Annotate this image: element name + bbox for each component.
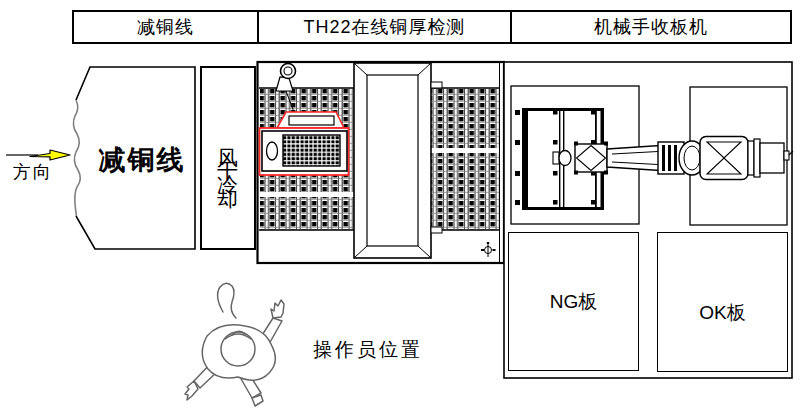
operator-position-label: 操作员位置 (313, 337, 423, 363)
header-th22-detection: TH22在线铜厚检测 (257, 12, 510, 42)
line-layout-diagram: 减铜线 TH22在线铜厚检测 机械手收板机 方向 减铜线 风干冷却 (0, 0, 800, 412)
ok-board-label: OK板 (699, 300, 745, 326)
gantry-frame (354, 63, 442, 258)
th22-machine-drawing (256, 60, 506, 265)
cooling-label: 风干冷却 (218, 132, 239, 184)
ok-board-box: OK板 (657, 232, 788, 372)
header-copper-line: 减铜线 (74, 12, 257, 42)
ng-board-label: NG板 (550, 289, 598, 315)
operator-figure-drawing (176, 278, 300, 412)
ng-board-box: NG板 (508, 232, 639, 371)
roller-field-right (431, 89, 500, 230)
header-robot-unloader: 机械手收板机 (510, 12, 790, 42)
scanner-grid-panel (283, 135, 340, 166)
cooling-box: 风干冷却 (200, 66, 256, 250)
copper-line-label: 减铜线 (86, 142, 198, 178)
section-header-row: 减铜线 TH22在线铜厚检测 机械手收板机 (72, 10, 792, 44)
direction-label: 方向 (13, 160, 53, 184)
